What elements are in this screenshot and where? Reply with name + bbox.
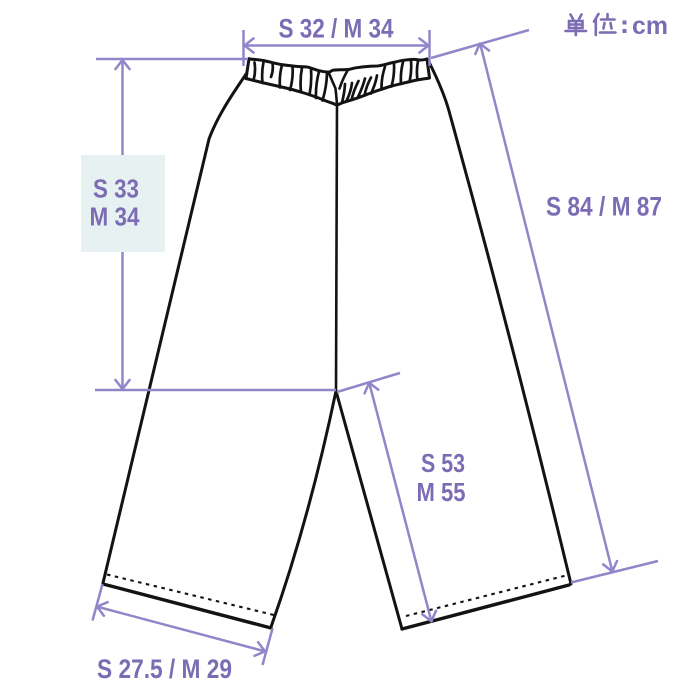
- svg-text:M 34: M 34: [90, 202, 140, 232]
- svg-text:cm: cm: [632, 12, 668, 40]
- svg-text:S 84 / M 87: S 84 / M 87: [546, 192, 662, 222]
- svg-text:S 53: S 53: [421, 448, 465, 478]
- svg-text:S 32 / M 34: S 32 / M 34: [279, 14, 394, 44]
- svg-text:S 33: S 33: [93, 174, 139, 204]
- svg-text:S 27.5 / M 29: S 27.5 / M 29: [97, 654, 232, 684]
- svg-text:M 55: M 55: [417, 477, 466, 507]
